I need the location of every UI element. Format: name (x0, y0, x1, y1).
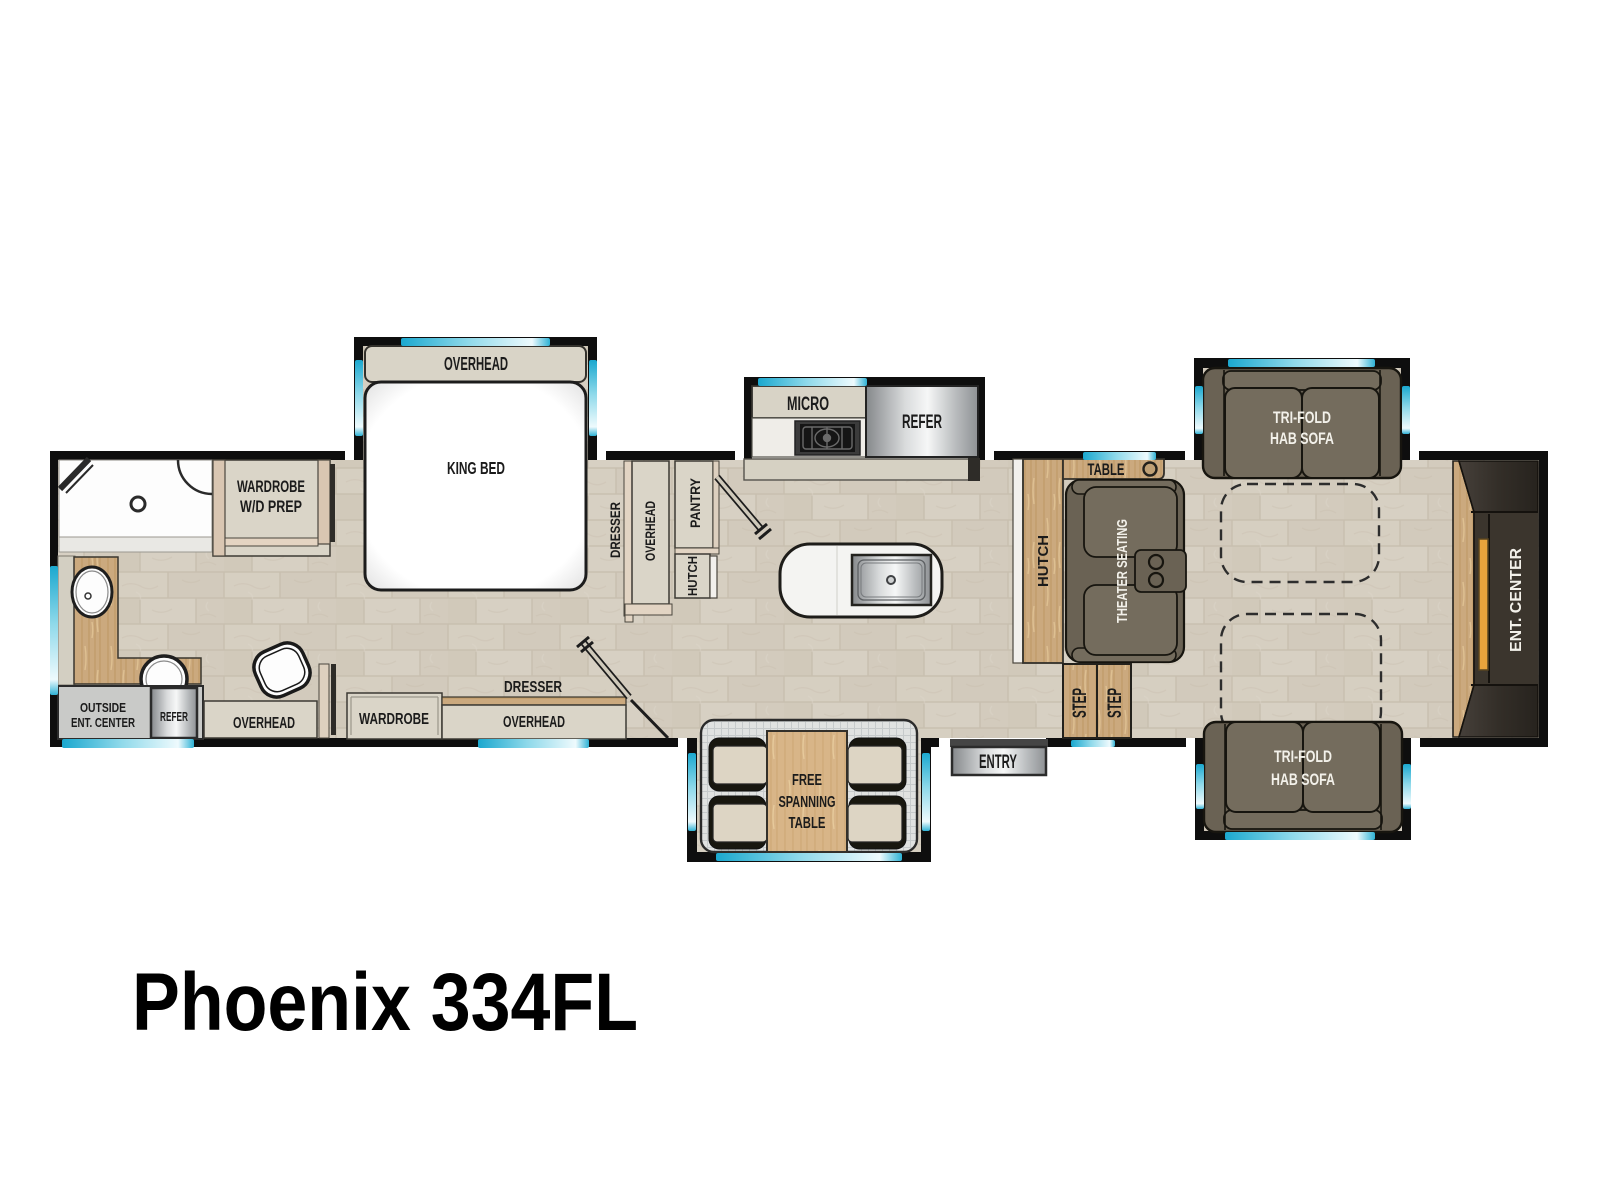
svg-text:Phoenix 334FL: Phoenix 334FL (132, 957, 638, 1048)
svg-text:OUTSIDE: OUTSIDE (80, 701, 126, 715)
svg-text:OVERHEAD: OVERHEAD (444, 354, 508, 374)
svg-text:TABLE: TABLE (789, 815, 826, 832)
svg-text:SPANNING: SPANNING (779, 794, 836, 811)
svg-text:W/D PREP: W/D PREP (240, 497, 302, 516)
svg-text:HAB SOFA: HAB SOFA (1270, 429, 1334, 448)
svg-text:WARDROBE: WARDROBE (237, 477, 305, 496)
svg-text:TRI-FOLD: TRI-FOLD (1274, 747, 1332, 766)
svg-text:ENTRY: ENTRY (979, 752, 1017, 773)
svg-text:PANTRY: PANTRY (687, 477, 703, 528)
svg-text:OVERHEAD: OVERHEAD (233, 715, 295, 732)
svg-text:HUTCH: HUTCH (686, 556, 700, 596)
svg-text:OVERHEAD: OVERHEAD (503, 714, 565, 731)
svg-text:THEATER SEATING: THEATER SEATING (1115, 519, 1131, 623)
svg-text:KING BED: KING BED (447, 458, 505, 478)
svg-text:REFER: REFER (160, 710, 188, 724)
svg-text:ENT. CENTER: ENT. CENTER (71, 716, 135, 730)
svg-text:DRESSER: DRESSER (607, 502, 623, 558)
svg-text:TRI-FOLD: TRI-FOLD (1273, 408, 1331, 427)
svg-text:ENT. CENTER: ENT. CENTER (1508, 548, 1525, 652)
svg-text:DRESSER: DRESSER (504, 679, 562, 696)
svg-text:REFER: REFER (902, 412, 942, 433)
svg-text:FREE: FREE (792, 772, 822, 789)
svg-text:HUTCH: HUTCH (1035, 535, 1052, 587)
svg-text:OVERHEAD: OVERHEAD (642, 501, 658, 561)
svg-text:STEP: STEP (1105, 688, 1126, 718)
svg-text:HAB SOFA: HAB SOFA (1271, 770, 1335, 789)
svg-text:STEP: STEP (1070, 688, 1091, 718)
svg-text:WARDROBE: WARDROBE (359, 711, 429, 728)
svg-text:TABLE: TABLE (1088, 460, 1125, 479)
svg-text:MICRO: MICRO (787, 394, 829, 415)
